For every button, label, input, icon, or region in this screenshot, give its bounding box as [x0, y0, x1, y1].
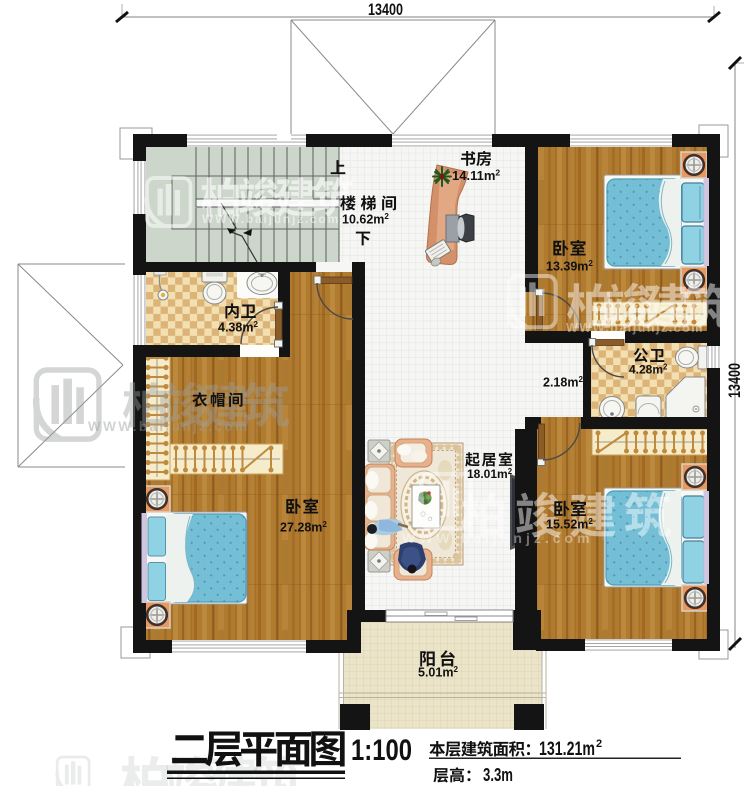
- svg-text:WWW.baijunjz.com: WWW.baijunjz.com: [88, 419, 249, 434]
- svg-text:WWW.baijunjz.com: WWW.baijunjz.com: [566, 321, 704, 335]
- svg-text:27.28m2: 27.28m2: [280, 520, 327, 534]
- svg-text:4.38m2: 4.38m2: [218, 320, 258, 334]
- svg-text:13400: 13400: [726, 363, 744, 398]
- svg-text:1:100: 1:100: [351, 734, 412, 767]
- svg-text:14.11m2: 14.11m2: [452, 168, 500, 184]
- svg-text:2.18m2: 2.18m2: [543, 375, 583, 389]
- svg-text:131.21m: 131.21m: [539, 739, 595, 760]
- svg-text:15.52m2: 15.52m2: [546, 517, 593, 531]
- svg-text:18.01m2: 18.01m2: [467, 467, 513, 481]
- svg-text:WWW.baijunjz.com: WWW.baijunjz.com: [402, 530, 594, 546]
- svg-text:WWW.baijunjz.com: WWW.baijunjz.com: [202, 212, 340, 226]
- svg-text:2: 2: [596, 738, 602, 750]
- svg-text:10.62m2: 10.62m2: [342, 212, 389, 226]
- svg-text:13400: 13400: [368, 1, 403, 19]
- svg-text:5.01m2: 5.01m2: [418, 665, 458, 679]
- svg-text:4.28m2: 4.28m2: [629, 362, 668, 376]
- svg-text:13.39m2: 13.39m2: [546, 259, 593, 273]
- svg-text:3.3m: 3.3m: [483, 765, 513, 785]
